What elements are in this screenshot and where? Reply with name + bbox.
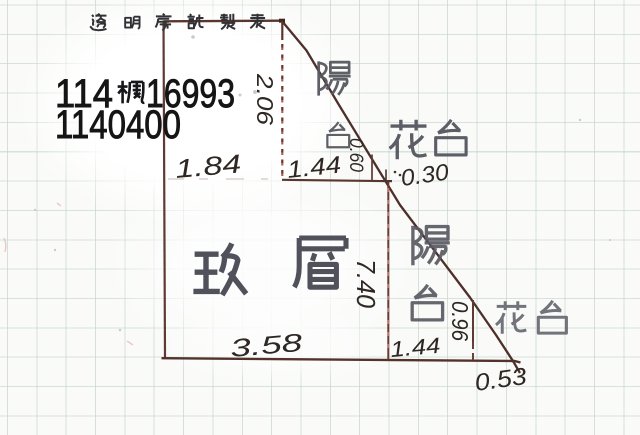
svg-text:1.44: 1.44 [389, 333, 441, 362]
svg-text:1140400: 1140400 [55, 103, 181, 147]
svg-text:0.60: 0.60 [345, 138, 366, 172]
svg-text:2.06: 2.06 [252, 73, 278, 125]
svg-text:0.96: 0.96 [447, 301, 473, 341]
svg-text:1.44: 1.44 [286, 151, 343, 183]
svg-text:0.53: 0.53 [473, 363, 529, 397]
svg-text:7.40: 7.40 [351, 259, 381, 309]
svg-text:1.84: 1.84 [174, 148, 242, 184]
svg-text:0.30: 0.30 [399, 158, 450, 190]
svg-text:3.58: 3.58 [229, 329, 303, 363]
